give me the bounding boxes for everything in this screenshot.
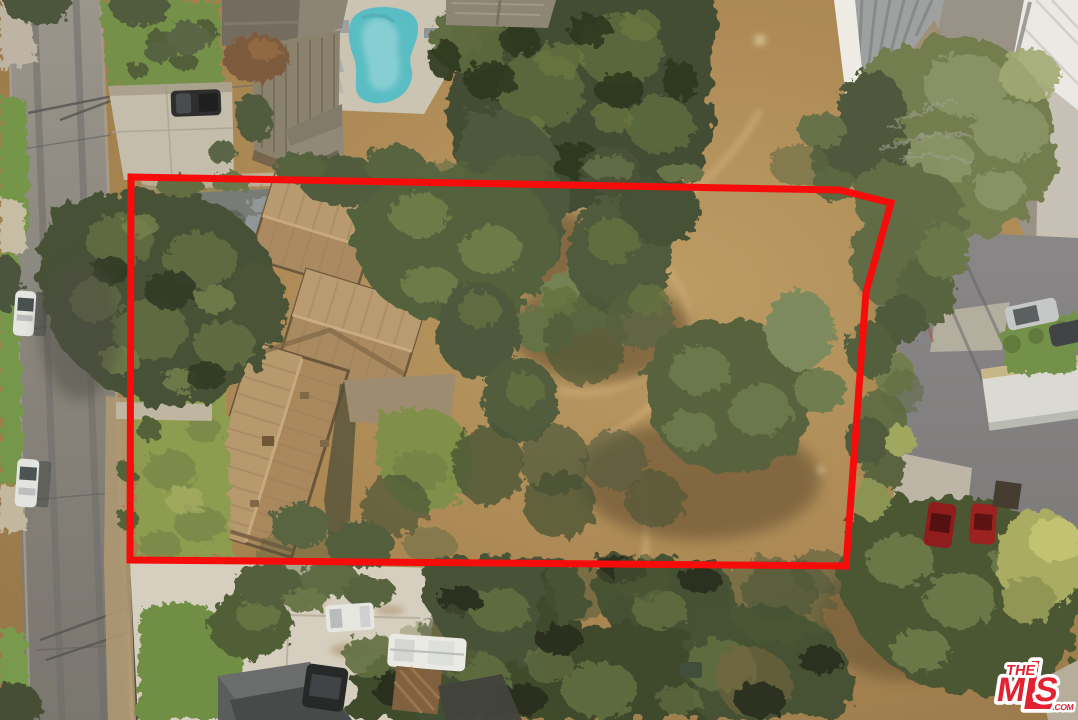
svg-text:.COM: .COM [1052, 702, 1075, 712]
svg-text:THE: THE [1005, 663, 1037, 679]
